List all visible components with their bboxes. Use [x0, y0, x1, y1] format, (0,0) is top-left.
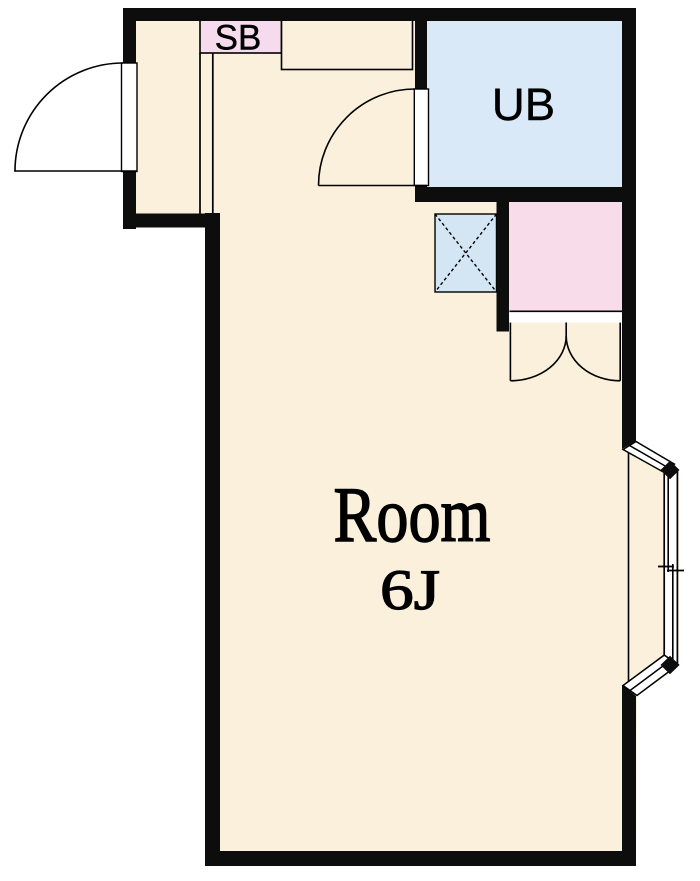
svg-text:UB: UB [492, 79, 555, 130]
svg-text:Room: Room [334, 471, 491, 558]
svg-text:6J: 6J [380, 559, 440, 622]
svg-text:SB: SB [215, 19, 262, 58]
